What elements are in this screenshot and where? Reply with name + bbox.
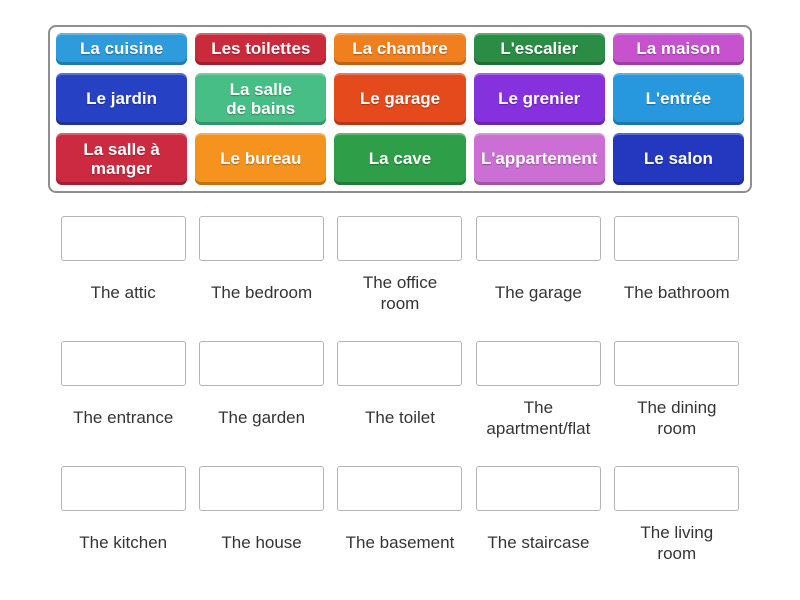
drop-slot[interactable] [476,216,601,261]
word-tile[interactable]: La salle de bains [195,73,326,125]
slot-row [54,216,746,261]
slot-label: The garage [495,270,582,316]
drop-slot[interactable] [61,216,186,261]
drop-slot[interactable] [337,341,462,386]
match-group: The atticThe bedroomThe office roomThe g… [54,216,746,316]
word-tile[interactable]: L'escalier [474,33,605,65]
drop-slot[interactable] [476,466,601,511]
label-row: The kitchenThe houseThe basementThe stai… [54,520,746,566]
slot-label: The living room [640,520,713,566]
drop-slot[interactable] [61,341,186,386]
slot-label: The bedroom [211,270,312,316]
label-row: The atticThe bedroomThe office roomThe g… [54,270,746,316]
slot-label: The entrance [73,395,173,441]
slot-label: The staircase [487,520,589,566]
slot-label: The toilet [365,395,435,441]
slot-label: The garden [218,395,305,441]
slot-label: The bathroom [624,270,730,316]
slot-label: The basement [346,520,455,566]
drop-slot[interactable] [61,466,186,511]
slot-label: The attic [91,270,156,316]
match-group: The entranceThe gardenThe toiletThe apar… [54,341,746,441]
slot-row [54,466,746,511]
drop-slot[interactable] [199,341,324,386]
drop-slot[interactable] [199,466,324,511]
word-tile[interactable]: L'entrée [613,73,744,125]
match-group: The kitchenThe houseThe basementThe stai… [54,466,746,566]
word-tile[interactable]: La salle à manger [56,133,187,185]
word-tile[interactable]: Le grenier [474,73,605,125]
slot-label: The dining room [637,395,716,441]
drop-slot[interactable] [614,216,739,261]
word-tile[interactable]: La chambre [334,33,465,65]
slot-label: The kitchen [79,520,167,566]
word-tile[interactable]: Le bureau [195,133,326,185]
slot-row [54,341,746,386]
drop-slot[interactable] [476,341,601,386]
drop-slot[interactable] [614,466,739,511]
word-tile[interactable]: Le garage [334,73,465,125]
word-tile[interactable]: La maison [613,33,744,65]
drop-slot[interactable] [199,216,324,261]
slot-label: The house [221,520,301,566]
word-bank: La cuisineLes toilettesLa chambreL'escal… [48,25,752,193]
slot-label: The office room [363,270,437,316]
slot-label: The apartment/flat [486,395,590,441]
word-tile[interactable]: L'appartement [474,133,605,185]
word-tile[interactable]: La cave [334,133,465,185]
word-tile[interactable]: La cuisine [56,33,187,65]
label-row: The entranceThe gardenThe toiletThe apar… [54,395,746,441]
drop-slot[interactable] [614,341,739,386]
drop-slot[interactable] [337,216,462,261]
word-tile[interactable]: Le salon [613,133,744,185]
word-tile[interactable]: Le jardin [56,73,187,125]
answer-area: The atticThe bedroomThe office roomThe g… [54,216,746,591]
word-tile[interactable]: Les toilettes [195,33,326,65]
drop-slot[interactable] [337,466,462,511]
